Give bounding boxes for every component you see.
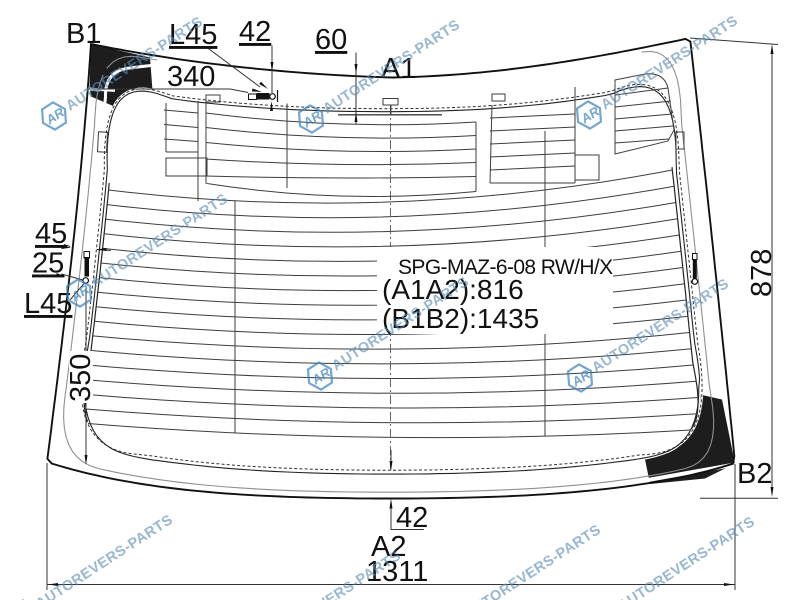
svg-text:42: 42 (239, 16, 271, 48)
svg-text:45: 45 (35, 218, 67, 250)
svg-text:60: 60 (315, 24, 347, 56)
svg-text:B2: B2 (737, 458, 772, 490)
svg-text:350: 350 (65, 354, 97, 402)
svg-text:25: 25 (32, 248, 64, 280)
svg-text:L45: L45 (24, 288, 72, 320)
svg-text:42: 42 (396, 502, 428, 534)
svg-text:878: 878 (746, 249, 778, 297)
svg-text:B1: B1 (66, 18, 101, 50)
svg-text:340: 340 (167, 61, 215, 93)
